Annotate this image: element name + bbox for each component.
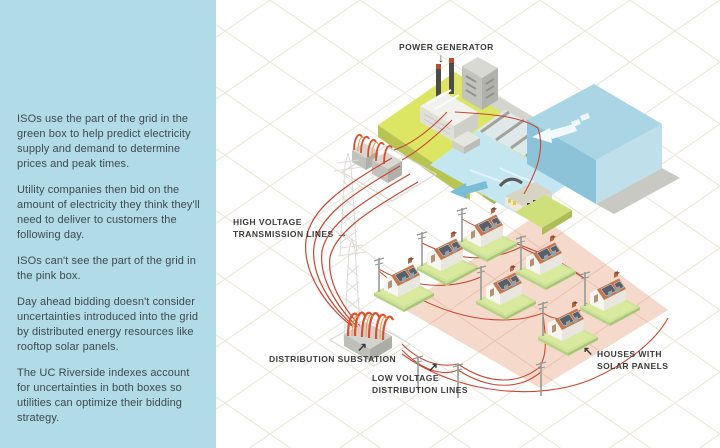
- power-generator-label: POWER GENERATOR: [399, 41, 494, 53]
- infographic-page: POWER GENERATOR ↓ HIGH VOLTAGE TRANSMISS…: [0, 0, 720, 448]
- low-voltage-label: LOW VOLTAGE DISTRIBUTION LINES: [372, 372, 468, 396]
- sidebar: ISOs use the part of the grid in the gre…: [0, 0, 216, 448]
- sidebar-paragraph: ISOs can't see the part of the grid in t…: [17, 254, 201, 284]
- up-left-arrow-icon: ↖: [583, 345, 593, 357]
- up-right-arrow-icon: ↗: [428, 361, 438, 373]
- sidebar-paragraph: The UC Riverside indexes account for unc…: [17, 366, 201, 426]
- right-arrow-icon: →: [336, 228, 347, 240]
- down-arrow-icon: ↓: [438, 52, 444, 64]
- sidebar-paragraph: Utility companies then bid on the amount…: [17, 183, 201, 243]
- sidebar-paragraph: Day ahead bidding doesn't consider uncer…: [17, 295, 201, 355]
- distribution-substation-label: DISTRIBUTION SUBSTATION: [269, 353, 396, 365]
- up-right-arrow-icon: ↗: [357, 341, 367, 353]
- houses-label: HOUSES WITH SOLAR PANELS: [597, 348, 668, 372]
- high-voltage-label: HIGH VOLTAGE TRANSMISSION LINES →: [233, 216, 348, 240]
- sidebar-paragraph: ISOs use the part of the grid in the gre…: [17, 112, 201, 172]
